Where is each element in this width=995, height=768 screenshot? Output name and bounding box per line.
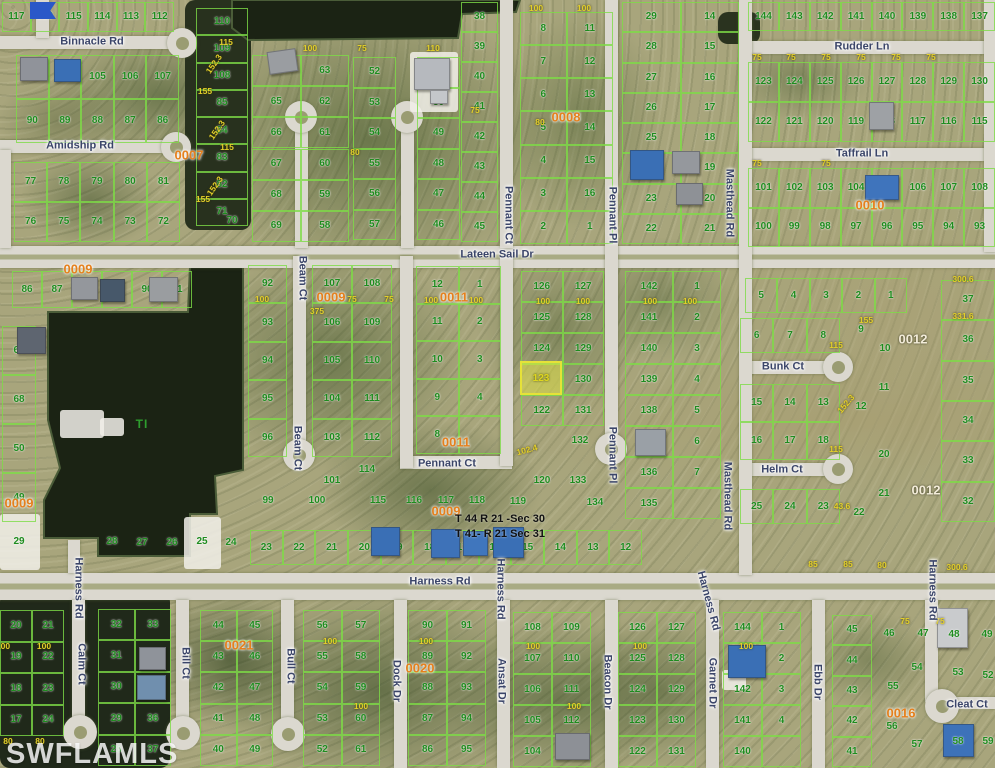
parcel-cell: 48 [237, 704, 274, 735]
lot-number: 41 [846, 747, 857, 757]
lot-number: 107 [154, 72, 171, 82]
parcel-cell: 29 [622, 2, 681, 32]
parcel-cell: 4 [459, 379, 502, 417]
lot-number: 25 [751, 502, 762, 512]
lot-number: 91 [461, 621, 472, 631]
lot-number: 52 [317, 745, 328, 755]
lot-number: 63 [319, 66, 330, 76]
parcel-cell: 87 [114, 99, 147, 143]
lot-number: 94 [943, 222, 954, 232]
parcel-cell: 48 [417, 149, 460, 180]
parcel-cell: 121 [779, 102, 810, 142]
parcel-cell: 94 [248, 342, 287, 380]
parcel-cell: 124 [618, 674, 657, 705]
lot-number: 128 [575, 313, 592, 323]
parcel-cell: 127 [872, 62, 903, 102]
parcel-cell: 44 [200, 610, 237, 641]
lot-number: 2 [856, 291, 862, 301]
block-number-label: 0009 [317, 291, 346, 304]
parcel-cell: 111 [352, 380, 392, 418]
dimension-label: 100 [323, 637, 337, 646]
parcel-cell: 13 [567, 78, 614, 111]
parcel-cell: 35 [941, 361, 995, 401]
cleared-lot-patch [60, 410, 104, 438]
parcel-cell: 78 [47, 162, 80, 202]
parcel-cell: 9 [416, 379, 459, 417]
parcel-cell: 107 [146, 55, 179, 99]
dimension-label: 75 [347, 295, 356, 304]
lot-number: 137 [971, 12, 988, 22]
lot-number: 6 [540, 90, 546, 100]
house-rooftop [630, 150, 664, 180]
house-rooftop [676, 183, 703, 205]
parcel-cell: 140 [872, 2, 903, 31]
lot-number: 2 [779, 654, 785, 664]
parcel-cell: 57 [342, 610, 381, 641]
lot-number: 28 [646, 42, 657, 52]
lot-number: 110 [364, 356, 380, 366]
lot-number: 3 [477, 355, 483, 365]
lot-number: 61 [355, 745, 366, 755]
street-label: Calm Ct [76, 643, 87, 685]
culdesac-island [832, 361, 845, 374]
lot-number: 88 [422, 683, 433, 693]
culdesac-island [74, 726, 87, 739]
lot-number: 4 [477, 393, 483, 403]
street-label: Pennant Ct [503, 186, 514, 244]
lot-number: 112 [364, 433, 380, 443]
street-label: Dock Dr [391, 660, 402, 702]
lot-number: 124 [786, 77, 803, 87]
parcel-cell: 86 [408, 735, 447, 766]
parcel-cell: 41 [832, 737, 872, 767]
lot-number: 96 [262, 433, 273, 443]
lot-number: 126 [848, 77, 865, 87]
lot-number: 16 [751, 436, 762, 446]
lot-number: 100 [755, 222, 772, 232]
lot-number: 11 [432, 317, 443, 327]
map-canvas[interactable]: 1171161151141131121031041051061079089888… [0, 0, 995, 768]
lot-number: 122 [755, 117, 772, 127]
parcel-cell: 2 [459, 304, 502, 342]
lot-number: 21 [704, 224, 715, 234]
lot-number: 19 [10, 652, 21, 662]
lot-number: 45 [474, 222, 485, 232]
lot-number: 110 [214, 17, 230, 27]
lot-number: 14 [784, 398, 795, 408]
parcel-cell: 52 [303, 735, 342, 766]
lot-number: 3 [779, 685, 785, 695]
lot-number: 85 [216, 98, 227, 108]
lot-number: 129 [575, 344, 592, 354]
parcel-cell: 136 [625, 457, 673, 488]
street-label: Helm Ct [761, 465, 803, 476]
parcel-cell: 106 [513, 674, 552, 705]
house-rooftop [17, 327, 46, 354]
lot-number: 129 [940, 77, 957, 87]
lot-number: 108 [214, 71, 231, 81]
lot-number: 14 [584, 123, 595, 133]
lot-number: 95 [262, 394, 273, 404]
parcel-cell: 14 [681, 2, 740, 32]
parcel-cell: 106 [902, 168, 933, 208]
house-rooftop [149, 277, 178, 302]
lot-number: 132 [572, 436, 589, 446]
parcel-cell: 110 [352, 342, 392, 380]
dimension-label: 100 [643, 297, 657, 306]
street-label: Beam Ct [292, 426, 303, 471]
lot-number: 111 [564, 685, 580, 695]
parcel-cell: 3 [459, 341, 502, 379]
parcel-cell: 25 [622, 123, 681, 153]
lot-number: 104 [848, 183, 865, 193]
lot-number: 13 [818, 398, 829, 408]
parcel-cell: 33 [941, 441, 995, 481]
lot-number: 96 [881, 222, 892, 232]
block-number-label: 0016 [887, 707, 916, 720]
lot-number: 22 [42, 652, 53, 662]
lot-number: 117 [8, 12, 24, 22]
parcel-cell: 45 [237, 610, 274, 641]
lot-number: 45 [846, 625, 857, 635]
lot-number: 36 [962, 335, 973, 345]
lot-number: 138 [641, 406, 658, 416]
parcel-cell: 128 [902, 62, 933, 102]
house-rooftop [865, 175, 899, 200]
lot-number: 92 [461, 652, 472, 662]
parcel-cell: 94 [933, 208, 964, 248]
parcel-cell: 138 [933, 2, 964, 31]
lot-number: 23 [261, 543, 272, 553]
lot-number: 17 [784, 436, 795, 446]
lot-number: 59 [355, 683, 366, 693]
parcel-cell: 130 [964, 62, 995, 102]
lot-number: 17 [10, 715, 21, 725]
parcel-cell: 93 [447, 672, 486, 703]
parcel-cell: 86 [12, 271, 42, 308]
dimension-label: 100 [536, 297, 550, 306]
parcel-cell: 32 [941, 482, 995, 522]
dimension-label: 100 [469, 296, 483, 305]
lot-number: 24 [784, 502, 795, 512]
lot-number: 20 [359, 543, 370, 553]
parcel-cell: 15 [567, 145, 614, 178]
lot-number: 106 [122, 72, 139, 82]
lot-number: 140 [734, 747, 751, 757]
lot-number: 24 [42, 715, 53, 725]
parcel-cell: 1 [762, 612, 801, 643]
street-label: Garnet Dr [707, 658, 718, 709]
lot-number: 47 [249, 683, 260, 693]
street-label: Rudder Ln [835, 42, 890, 53]
house-rooftop [100, 279, 125, 302]
parcel-cell: 41 [200, 704, 237, 735]
parcel-cell: 3 [520, 178, 567, 211]
parcel-cell: 107 [933, 168, 964, 208]
parcel-cell: 29 [98, 703, 135, 734]
parcel-cell: 116 [933, 102, 964, 142]
parcel-cell: 122 [748, 102, 779, 142]
lot-number: 22 [853, 508, 864, 518]
lot-number: 144 [755, 12, 772, 22]
lot-number: 94 [461, 714, 472, 724]
parcel-cell: 13 [807, 384, 840, 422]
lot-number: 27 [136, 538, 147, 548]
lot-number: 81 [158, 177, 169, 187]
lot-number: 117 [910, 117, 926, 127]
lot-number: 9 [858, 325, 864, 335]
culdesac-bulb [271, 717, 305, 751]
parcel-cell: 4 [777, 278, 809, 313]
dimension-label: 75 [900, 617, 909, 626]
section-township-range-label: T 44 R 21 -Sec 30 T 41- R 21 Sec 31 [400, 512, 600, 542]
parcel-cell: 129 [933, 62, 964, 102]
lot-number: 57 [355, 621, 366, 631]
lot-number: 141 [848, 12, 865, 22]
parcel-cell: 42 [200, 672, 237, 703]
lot-number: 141 [734, 716, 751, 726]
parcel-cell: 137 [964, 2, 995, 31]
lot-number: 40 [474, 72, 485, 82]
lot-number: 115 [370, 496, 386, 506]
parcel-cell: 131 [563, 395, 605, 426]
lot-number: 45 [249, 621, 260, 631]
lot-number: 87 [422, 714, 433, 724]
lot-number: 12 [432, 280, 443, 290]
house-rooftop [139, 647, 166, 670]
lot-number: 67 [271, 159, 282, 169]
street-label: Cleat Ct [946, 700, 988, 711]
lot-number: 107 [324, 279, 341, 289]
parcel-cell: 44 [461, 182, 498, 212]
parcel-cell: 23 [250, 530, 283, 565]
parcel-cell: 18 [681, 123, 740, 153]
parcel-cell: 99 [779, 208, 810, 248]
parcel-cell: 40 [200, 735, 237, 766]
lot-number: 60 [355, 714, 366, 724]
parcel-cell: 56 [353, 179, 396, 210]
parcel-cell: 130 [563, 364, 605, 395]
lot-number: 55 [317, 652, 328, 662]
parcel-cell: 141 [841, 2, 872, 31]
parcel-cell: 108 [513, 612, 552, 643]
parcel-cell: 55 [303, 641, 342, 672]
lot-number: 17 [704, 103, 715, 113]
parcel-cell: 128 [563, 302, 605, 333]
parcel-cell: 139 [902, 2, 933, 31]
parcel-cell: 93 [248, 303, 287, 341]
lot-number: 116 [941, 117, 957, 127]
lot-number: 55 [369, 159, 380, 169]
lot-number: 128 [668, 654, 685, 664]
section-line-2: T 41- R 21 Sec 31 [400, 527, 600, 542]
lot-number: 15 [704, 42, 715, 52]
lot-number: 41 [213, 714, 224, 724]
parcel-cell: 24 [773, 489, 806, 524]
block-number-label: 0010 [856, 199, 885, 212]
parcel-cell: 95 [902, 208, 933, 248]
lot-number: 116 [406, 496, 422, 506]
lot-number: 53 [952, 668, 963, 678]
lot-number: 106 [324, 318, 341, 328]
parcel-cell: 94 [447, 704, 486, 735]
lot-number: 123 [755, 77, 772, 87]
parcel-cell: 42 [461, 122, 498, 152]
lot-number: 120 [817, 117, 834, 127]
lot-number: 60 [319, 159, 330, 169]
lot-number: 68 [13, 395, 24, 405]
parcel-cell: 65 [252, 86, 301, 117]
block-number-label: 0011 [442, 436, 470, 449]
lot-number: 76 [25, 217, 36, 227]
lot-number: 79 [91, 177, 102, 187]
lot-number: 3 [694, 344, 700, 354]
parcel-cell: 33 [135, 609, 172, 640]
lot-number: 66 [271, 128, 282, 138]
parcel-cell: 93 [964, 208, 995, 248]
lot-number: 22 [646, 224, 657, 234]
lot-number: 3 [540, 189, 546, 199]
parcel-cell: 135 [625, 488, 673, 519]
parcel-cell: 50 [2, 424, 36, 473]
parcel-cell: 142 [723, 674, 762, 705]
parcel-cell: 102 [779, 168, 810, 208]
lot-number: 23 [42, 684, 53, 694]
street-label: Pennant Pl [607, 187, 618, 244]
lot-number: 131 [668, 747, 685, 757]
parcel-cell: 43 [832, 676, 872, 706]
lot-number: 32 [111, 620, 122, 630]
parcel-cell: 140 [723, 736, 762, 767]
parcel-cell: 10 [416, 341, 459, 379]
lot-number: 34 [962, 416, 973, 426]
parcel-cell: 76 [14, 202, 47, 242]
lot-number: 4 [779, 716, 785, 726]
lot-number: 140 [641, 344, 658, 354]
lot-number: 122 [533, 406, 550, 416]
lot-number: 54 [317, 683, 328, 693]
parcel-cell: 144 [723, 612, 762, 643]
dimension-label: 75 [786, 53, 795, 62]
lot-number: 18 [704, 133, 715, 143]
parcel-cell: 105 [81, 55, 114, 99]
dimension-label: 155 [196, 195, 210, 204]
lot-number: 39 [474, 42, 485, 52]
dimension-label: 75 [821, 53, 830, 62]
parcel-cell: 16 [740, 422, 773, 460]
parcel-cell: 17 [0, 705, 32, 737]
house-rooftop [371, 527, 400, 556]
highlighted-parcel[interactable]: 123 [520, 361, 562, 395]
dimension-label: 331.6 [952, 312, 973, 321]
lot-number: 102 [786, 183, 803, 193]
dimension-label: 75 [357, 44, 366, 53]
parcel-cell: 101 [748, 168, 779, 208]
lot-number: 57 [911, 740, 922, 750]
dimension-label: 85 [808, 560, 817, 569]
road [0, 150, 11, 248]
lot-number: 53 [369, 98, 380, 108]
dimension-label: 100 [529, 4, 543, 13]
street-label: Bull Ct [285, 648, 296, 683]
parcel-cell: 17 [681, 93, 740, 123]
lot-number: 44 [213, 621, 224, 631]
lot-number: 59 [319, 190, 330, 200]
lot-number: 135 [641, 499, 658, 509]
house-rooftop [137, 675, 166, 700]
dimension-label: 155 [198, 87, 212, 96]
lot-number: 86 [157, 116, 168, 126]
block-number-label: 0009 [64, 263, 93, 276]
parcel-cell [762, 736, 801, 767]
lot-number: 29 [13, 537, 24, 547]
cleared-lot-patch [100, 418, 124, 436]
parcel-cell: 61 [342, 735, 381, 766]
lot-number: 83 [216, 153, 227, 163]
lot-number: 90 [27, 116, 38, 126]
parcel-cell: 95 [447, 735, 486, 766]
lot-number: 108 [971, 183, 988, 193]
lot-number: 99 [789, 222, 800, 232]
lot-number: 23 [646, 194, 657, 204]
parcel-cell: 68 [252, 180, 301, 211]
parcel-cell: 104 [513, 736, 552, 767]
parcel-cell: 1 [875, 278, 907, 313]
lot-number: 68 [271, 190, 282, 200]
lot-number: 25 [646, 133, 657, 143]
lot-number: 8 [434, 430, 440, 440]
culdesac-island [176, 37, 189, 50]
lot-number: 103 [324, 433, 341, 443]
lot-number: 104 [524, 747, 541, 757]
street-label: Harness Rd [495, 558, 506, 619]
parcel-cell: 6 [673, 426, 721, 457]
lot-number: 7 [540, 57, 546, 67]
dimension-label: 115 [219, 38, 233, 47]
lot-number: 49 [433, 128, 444, 138]
lot-number: 93 [461, 683, 472, 693]
lot-number: 142 [734, 685, 751, 695]
lot-number: 106 [524, 685, 541, 695]
parcel-cell: 3 [673, 333, 721, 364]
parcel-cell: 58 [301, 211, 350, 242]
lot-number: 62 [319, 97, 330, 107]
lot-number: 56 [317, 621, 328, 631]
lot-number: 114 [94, 12, 110, 22]
dimension-label: 110 [426, 44, 440, 53]
dimension-label: 75 [856, 53, 865, 62]
lot-number: 65 [271, 97, 282, 107]
lot-number: 16 [704, 73, 715, 83]
parcel-cell: 125 [810, 62, 841, 102]
block-number-label: 0012 [912, 484, 941, 497]
lot-number: 124 [629, 685, 646, 695]
parcel-cell: 141 [625, 302, 673, 333]
parcel-cell: 4 [520, 145, 567, 178]
lot-number: 7 [694, 468, 700, 478]
block-number-label: 0009 [5, 497, 34, 510]
lot-number: 1 [888, 291, 894, 301]
lot-number: 49 [981, 630, 992, 640]
lot-number: 16 [584, 189, 595, 199]
parcel-cell: 5 [673, 395, 721, 426]
parcel-cell: 61 [301, 117, 350, 148]
parcel-cell: 125 [521, 302, 563, 333]
lot-number: 44 [474, 192, 485, 202]
lot-number: 28 [106, 537, 117, 547]
lot-number: 54 [369, 128, 380, 138]
lot-number: 46 [249, 652, 260, 662]
